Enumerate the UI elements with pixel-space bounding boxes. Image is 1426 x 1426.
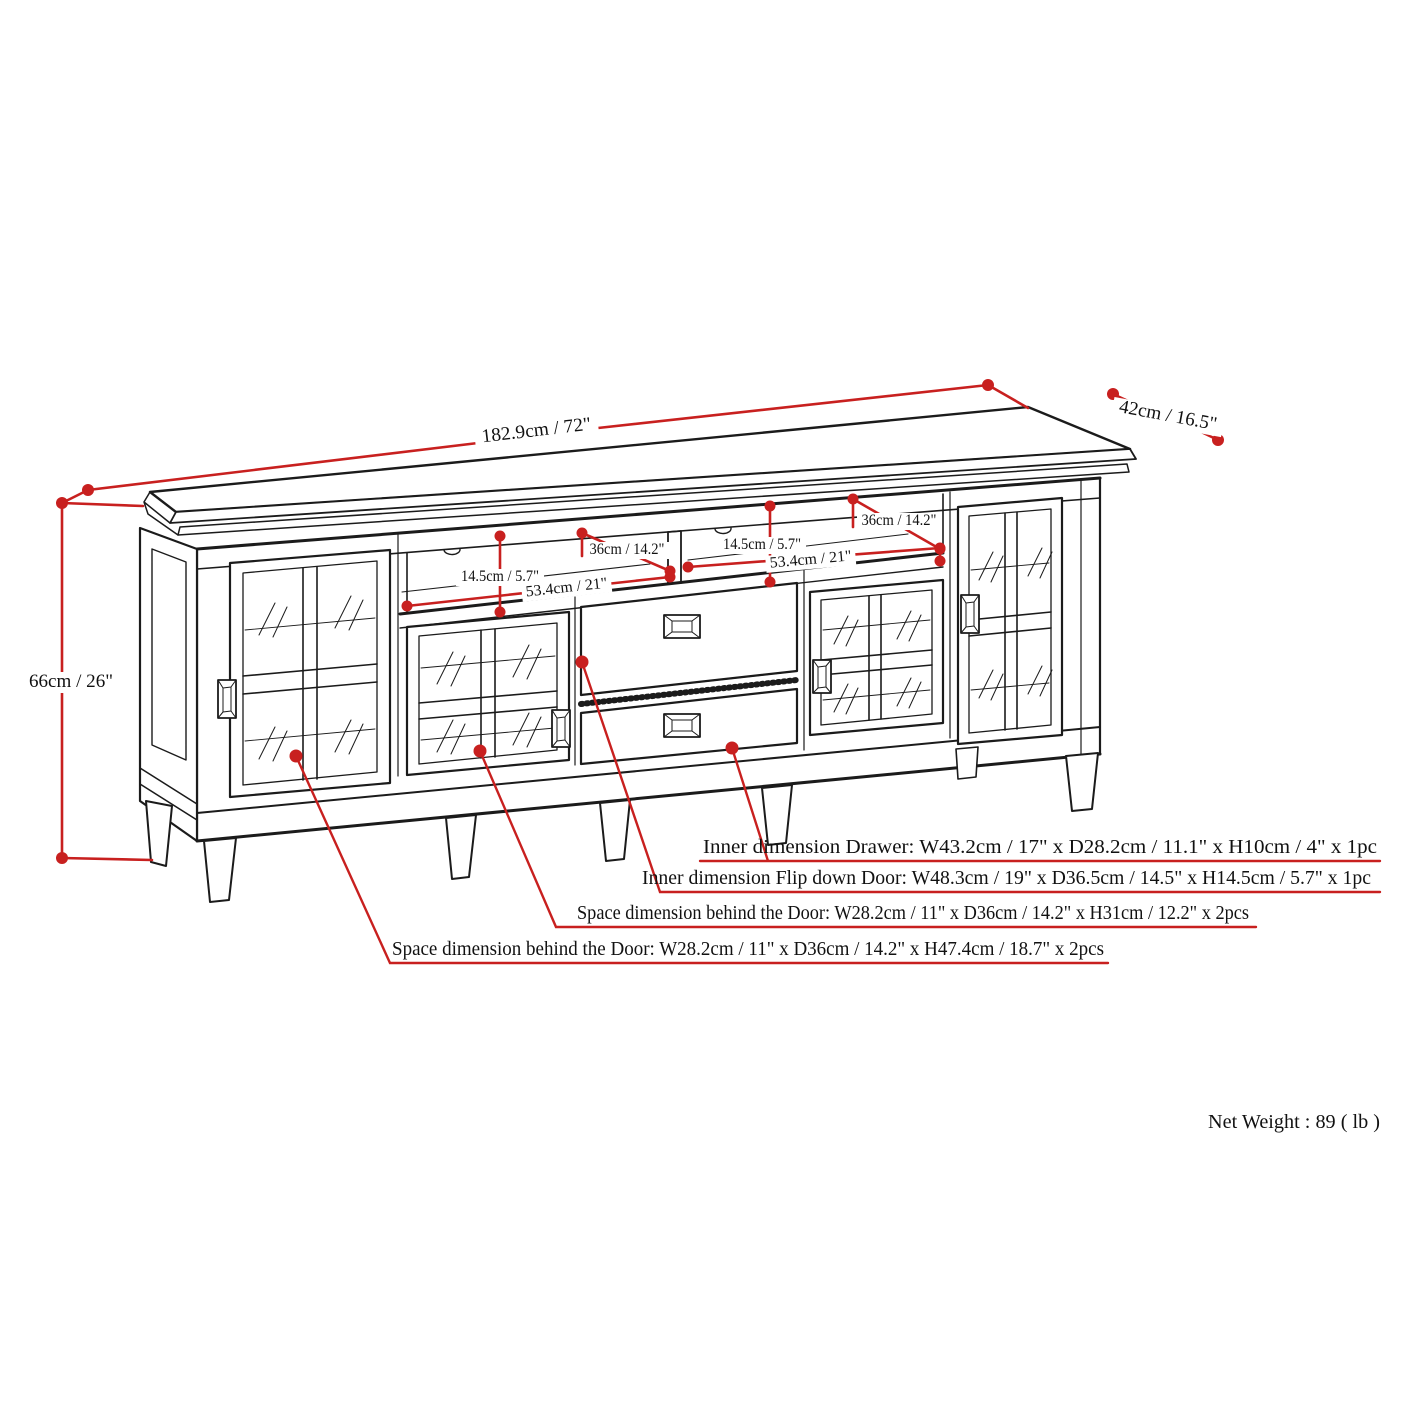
callout-behind-door-tall: Space dimension behind the Door: W28.2cm… xyxy=(392,939,1104,960)
callout-flip-down-door: Inner dimension Flip down Door: W48.3cm … xyxy=(642,868,1371,889)
drawer-handle xyxy=(664,714,700,737)
right-shelf-height-label: 14.5cm / 5.7" xyxy=(723,536,801,553)
flip-down-door xyxy=(581,583,797,695)
drawer-handle xyxy=(664,615,700,638)
depth-dimension-label: 42cm / 16.5" xyxy=(1117,396,1218,435)
short-glass-door-left xyxy=(407,612,570,775)
furniture-dimension-drawing: 182.9cm / 72" 42cm / 16.5" 66cm / 26" 14… xyxy=(0,0,1426,1426)
door-handle xyxy=(552,710,570,747)
net-weight-label: Net Weight : 89 ( lb ) xyxy=(1208,1111,1380,1133)
door-handle xyxy=(218,680,236,718)
leader-behind-door-tall xyxy=(296,756,1108,963)
door-handle xyxy=(813,660,831,693)
callout-drawer: Inner dimension Drawer: W43.2cm / 17" x … xyxy=(703,837,1377,858)
left-side-panel xyxy=(140,528,197,841)
callout-annotations: Inner dimension Drawer: W43.2cm / 17" x … xyxy=(392,837,1377,960)
dimension-diagram-page: 182.9cm / 72" 42cm / 16.5" 66cm / 26" 14… xyxy=(0,0,1426,1426)
left-shelf-depth-label: 36cm / 14.2" xyxy=(590,541,665,558)
door-handle xyxy=(961,595,979,633)
width-dimension-label: 182.9cm / 72" xyxy=(481,414,593,448)
tall-glass-door-left xyxy=(218,550,390,797)
right-shelf-depth-label: 36cm / 14.2" xyxy=(862,512,937,529)
height-dimension-label: 66cm / 26" xyxy=(29,671,113,692)
short-glass-door-right xyxy=(810,580,943,735)
tall-glass-door-right xyxy=(958,498,1062,744)
callout-behind-door-short: Space dimension behind the Door: W28.2cm… xyxy=(577,903,1249,924)
